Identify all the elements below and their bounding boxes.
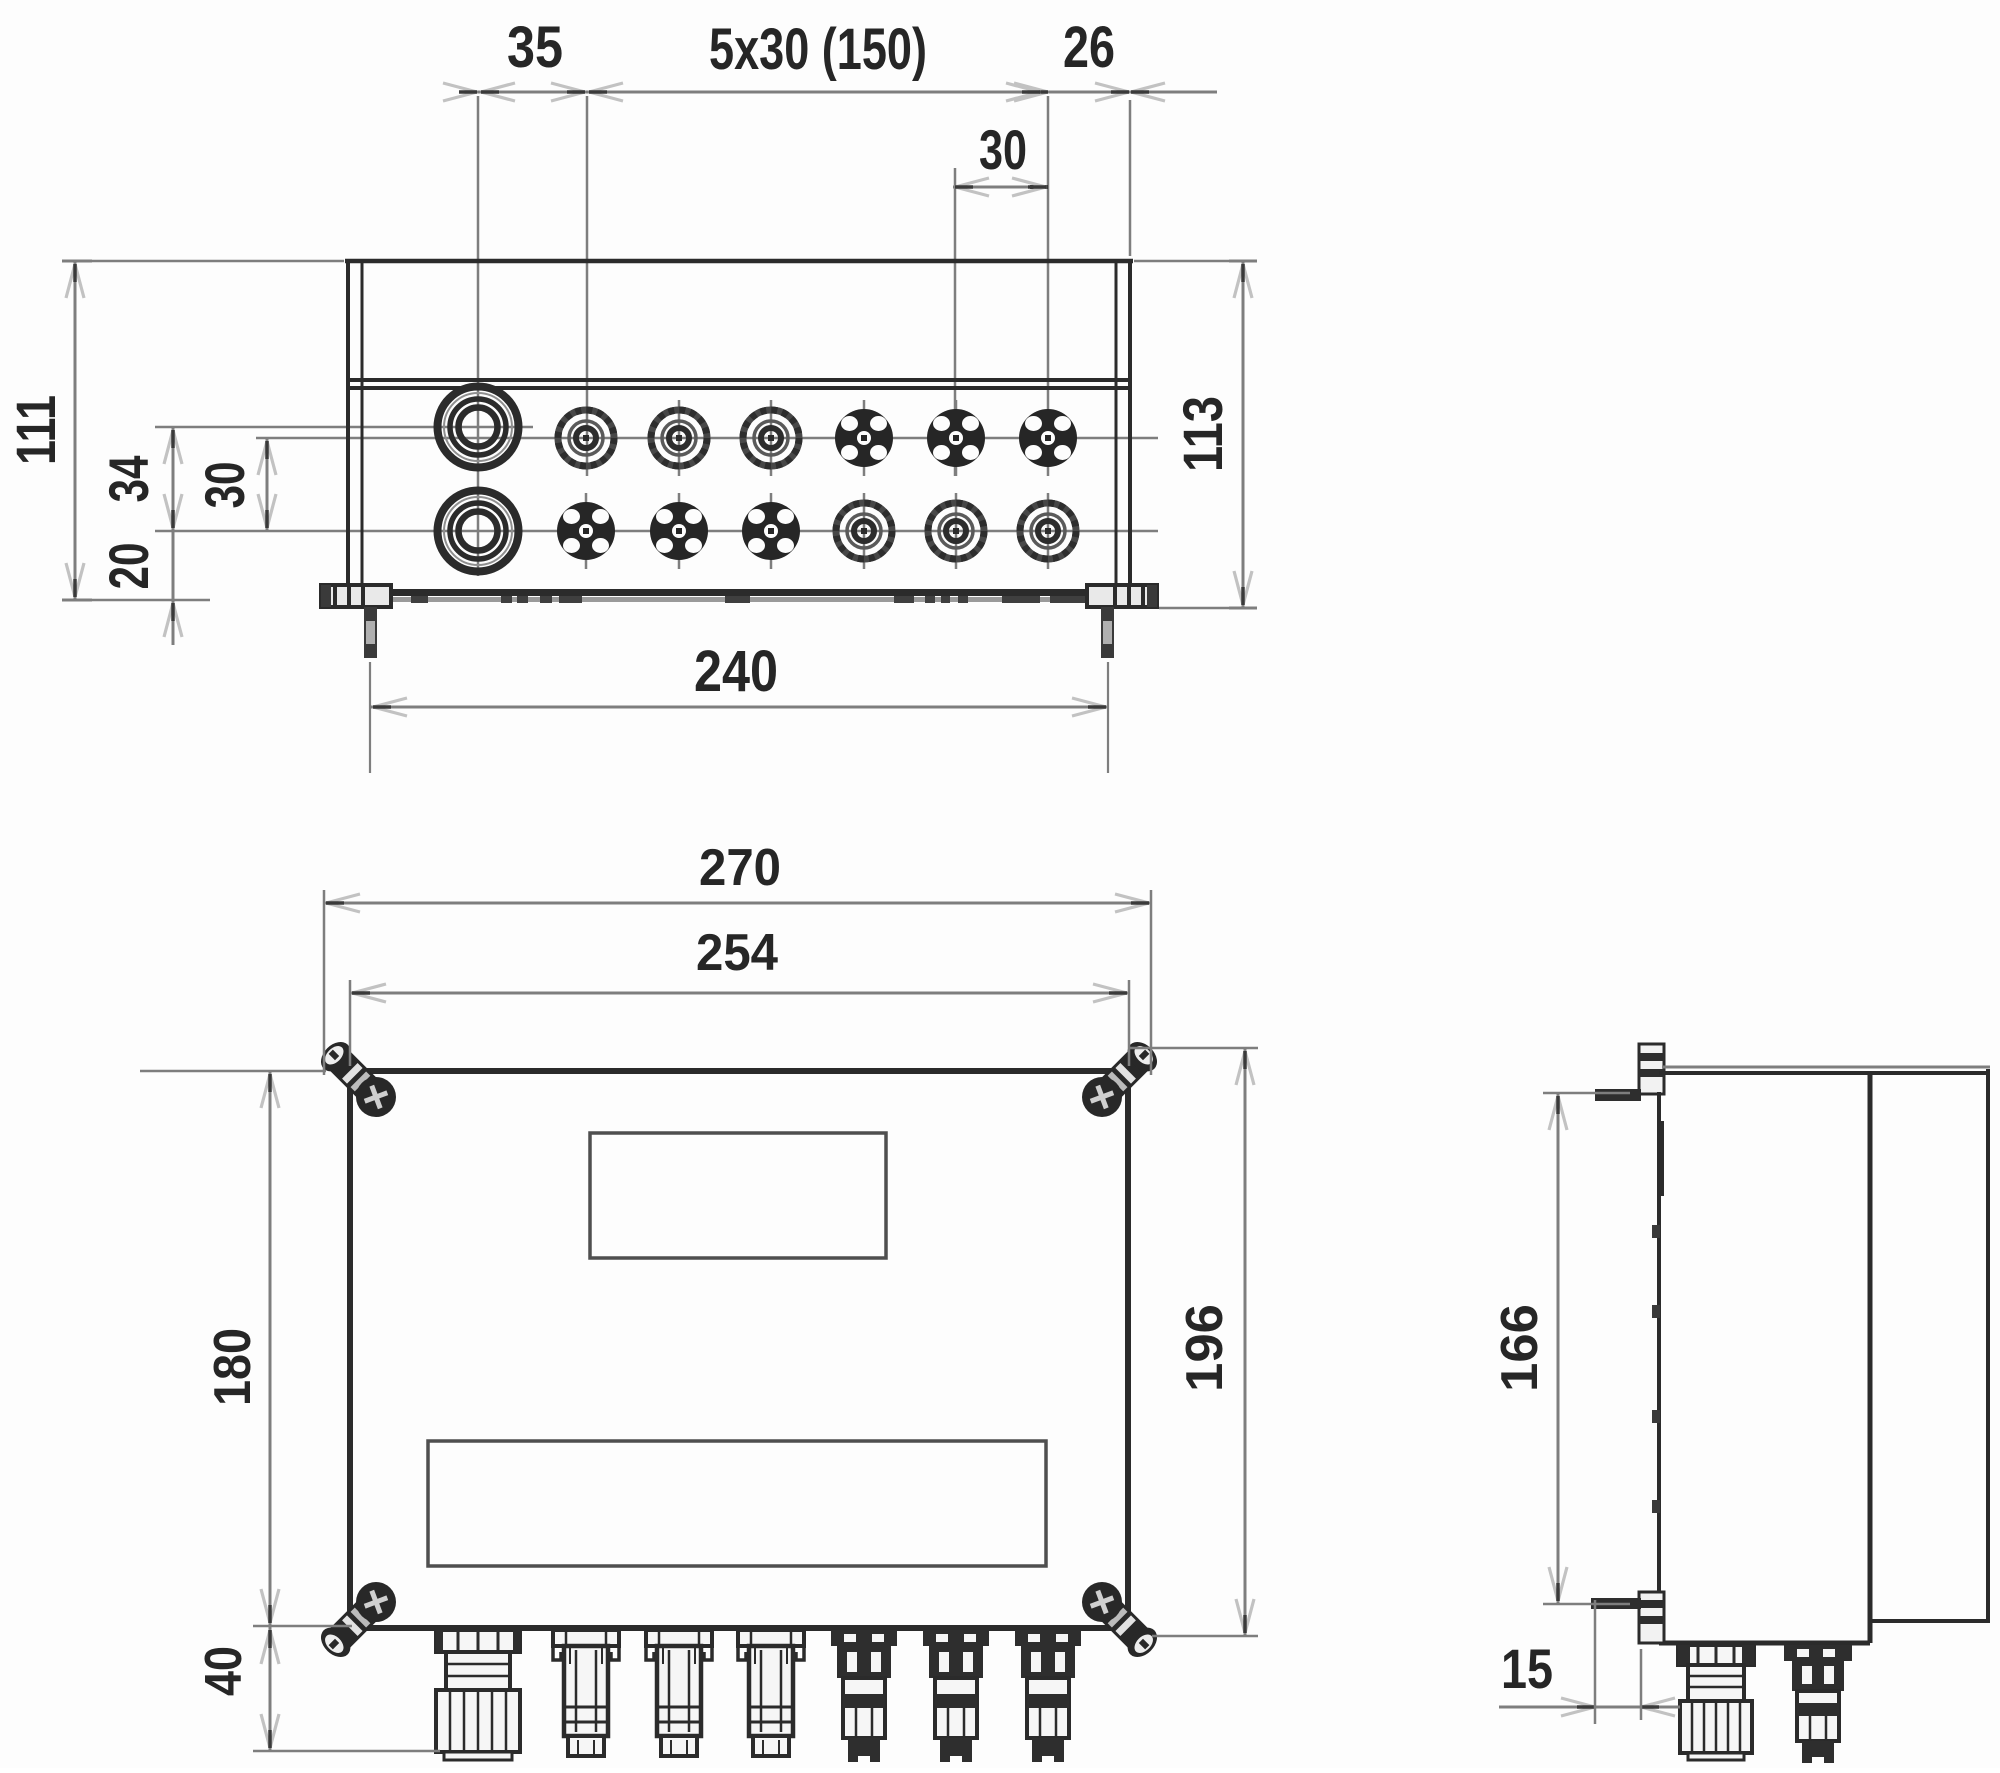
svg-text:35: 35 <box>507 15 563 80</box>
svg-text:40: 40 <box>195 1646 253 1696</box>
svg-text:166: 166 <box>1491 1304 1549 1392</box>
svg-text:34: 34 <box>97 456 160 503</box>
svg-text:113: 113 <box>1171 396 1234 472</box>
svg-text:20: 20 <box>97 543 160 590</box>
svg-text:270: 270 <box>699 839 781 897</box>
svg-text:30: 30 <box>193 462 256 509</box>
svg-text:111: 111 <box>4 395 67 465</box>
svg-text:254: 254 <box>696 924 778 982</box>
svg-text:180: 180 <box>204 1328 262 1406</box>
svg-text:240: 240 <box>694 639 778 704</box>
svg-text:15: 15 <box>1501 1637 1553 1700</box>
svg-text:5x30 (150): 5x30 (150) <box>709 17 927 82</box>
svg-text:196: 196 <box>1176 1304 1234 1392</box>
svg-text:26: 26 <box>1063 15 1115 80</box>
svg-text:30: 30 <box>979 118 1027 181</box>
